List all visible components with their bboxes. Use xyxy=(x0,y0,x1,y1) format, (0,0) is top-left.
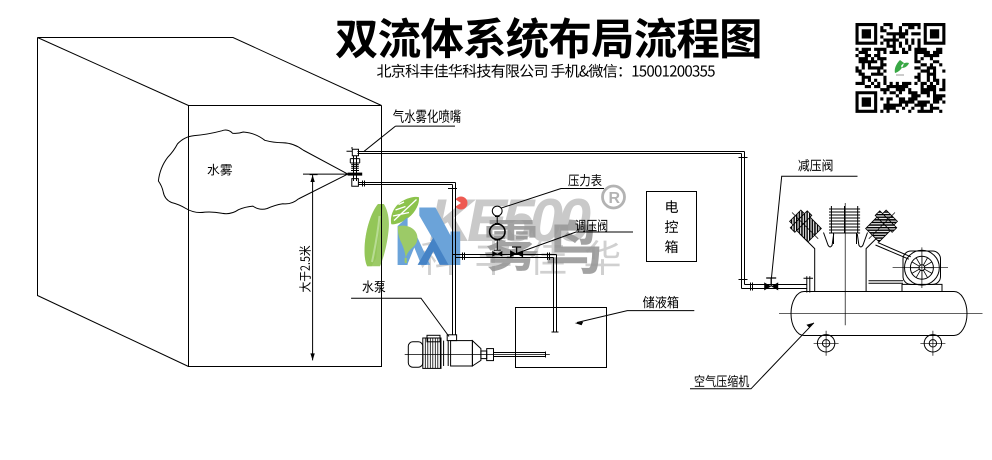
svg-text:R: R xyxy=(609,190,621,207)
